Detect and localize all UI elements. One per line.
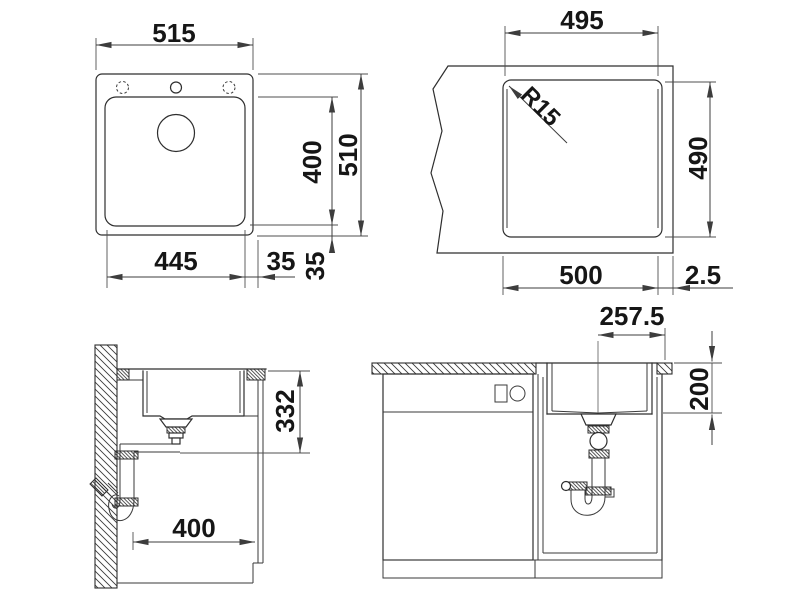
- dim-side-install-depth: 332: [270, 389, 300, 432]
- wall-section: [95, 345, 117, 588]
- siphon-front: [562, 458, 615, 515]
- side-section-view: 332 400: [90, 345, 310, 588]
- dim-plan-overall-width: 515: [152, 18, 195, 48]
- worktop-cut-block-left: [117, 369, 129, 380]
- bowl-section: [143, 371, 244, 419]
- control-knob: [510, 386, 525, 401]
- dim-cutout-edge-gap: 2.5: [685, 260, 721, 290]
- bowl-front-section: [547, 363, 652, 414]
- worktop-strip-left: [372, 363, 536, 374]
- sink-outline: [96, 74, 253, 235]
- dim-cutout-width-top: 495: [560, 5, 603, 35]
- base-cabinet-side: [117, 380, 263, 583]
- dim-plan-bowl-width: 445: [154, 246, 197, 276]
- bowl-outline: [105, 97, 245, 226]
- technical-drawing-canvas: 515 445 35 400 510 35 495 R15: [0, 0, 800, 600]
- plinth: [383, 560, 662, 578]
- dim-side-cabinet-clearance: 400: [172, 513, 215, 543]
- dim-front-bowl-height: 200: [684, 367, 714, 410]
- dim-plan-overall-depth: 510: [333, 133, 363, 176]
- dim-cutout-depth: 490: [683, 136, 713, 179]
- worktop-cut-block-right: [247, 369, 265, 380]
- control-rect: [495, 385, 507, 402]
- drain-assembly: [160, 419, 192, 444]
- optional-tap-hole-left: [117, 82, 129, 94]
- optional-tap-hole-right: [223, 82, 235, 94]
- drain-circle: [158, 115, 195, 152]
- sink-cabinet: [383, 374, 662, 578]
- front-section-view: 257.5 200: [372, 301, 722, 578]
- worktop-strip-right: [657, 363, 672, 374]
- plan-view: 515 445 35 400 510 35: [96, 18, 368, 288]
- dim-front-drain-offset: 257.5: [599, 301, 664, 331]
- sink-drawing: 515 445 35 400 510 35 495 R15: [0, 0, 800, 600]
- dim-plan-bowl-depth: 400: [297, 140, 327, 183]
- tap-hole: [171, 82, 182, 93]
- cutout-view: 495 R15 490 500 2.5: [431, 5, 733, 295]
- dim-plan-rim-back: 35: [300, 252, 330, 281]
- dim-plan-rim-side: 35: [267, 246, 296, 276]
- worktop-outline: [431, 66, 673, 253]
- dishwasher-cabinet: [383, 374, 533, 560]
- plan-extension-lines: [96, 38, 368, 288]
- drain-strainer-front: [581, 414, 616, 458]
- dim-cutout-width-bottom: 500: [559, 260, 602, 290]
- dim-cutout-radius: R15: [515, 82, 565, 132]
